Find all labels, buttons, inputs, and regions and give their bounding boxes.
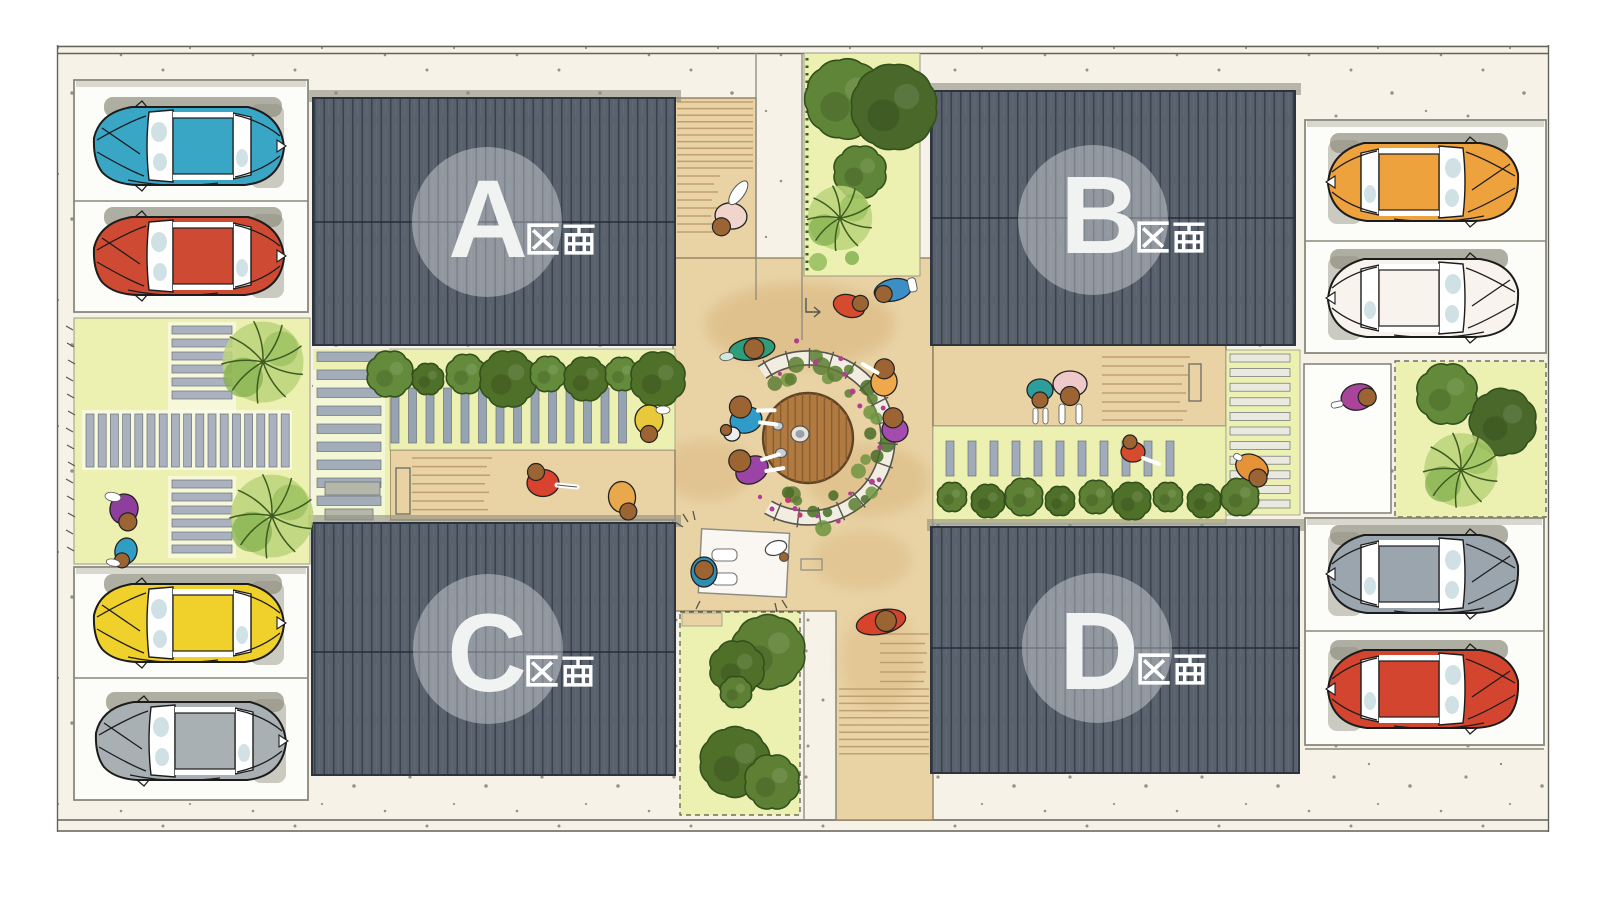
svg-text:B: B <box>1060 154 1139 277</box>
svg-text:D: D <box>1059 590 1138 713</box>
svg-text:C: C <box>447 592 526 715</box>
svg-text:A: A <box>448 158 527 281</box>
